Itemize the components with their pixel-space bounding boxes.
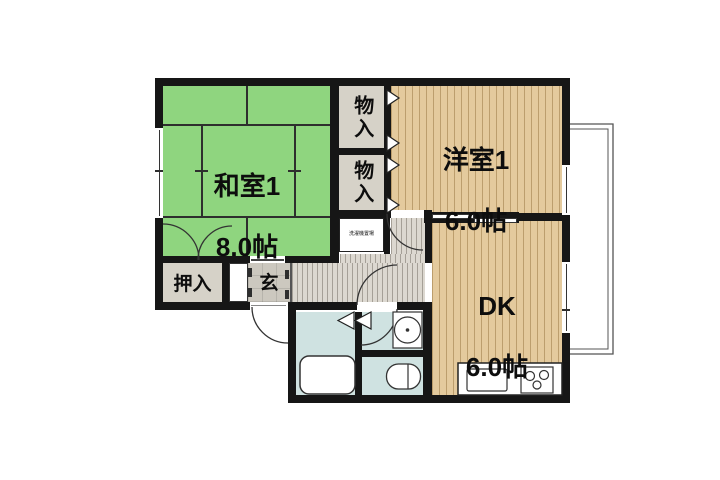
storage-top-label: 物入 (338, 90, 384, 145)
dk-area: 6.0帖 (432, 352, 562, 383)
dk-label: DK 6.0帖 (432, 260, 562, 413)
storage-fold-chevron (387, 90, 399, 106)
washitsu-area: 8.0帖 (167, 232, 327, 263)
door-arc-corridor (357, 265, 397, 305)
vanity-drain (406, 328, 410, 332)
dk-name: DK (432, 291, 562, 322)
symbol-overlay (0, 0, 720, 480)
bath-folding-door (338, 312, 354, 329)
washitsu-label: 和室1 8.0帖 (167, 140, 327, 293)
storage-bottom-label: 物入 (338, 157, 384, 209)
oshiire-label: 押入 (163, 274, 222, 296)
youshitsu-area: 6.0帖 (396, 206, 556, 237)
genkan-label: 玄 (248, 273, 290, 295)
youshitsu-name: 洋室1 (396, 145, 556, 176)
door-arc-entrance (252, 307, 288, 343)
bath-folding-door (355, 312, 371, 329)
balcony-inner-line (570, 129, 608, 349)
toilet-fixture (387, 364, 421, 389)
washitsu-name: 和室1 (167, 171, 327, 202)
floor-plan-canvas: 和室1 8.0帖 洋室1 6.0帖 DK 6.0帖 物入 物入 押入 玄 洗濯機… (0, 0, 720, 480)
youshitsu-label: 洋室1 6.0帖 (396, 114, 556, 267)
washer-label: 洗濯機置場 (340, 232, 383, 237)
bathtub (300, 356, 355, 394)
balcony-outline (570, 124, 613, 354)
